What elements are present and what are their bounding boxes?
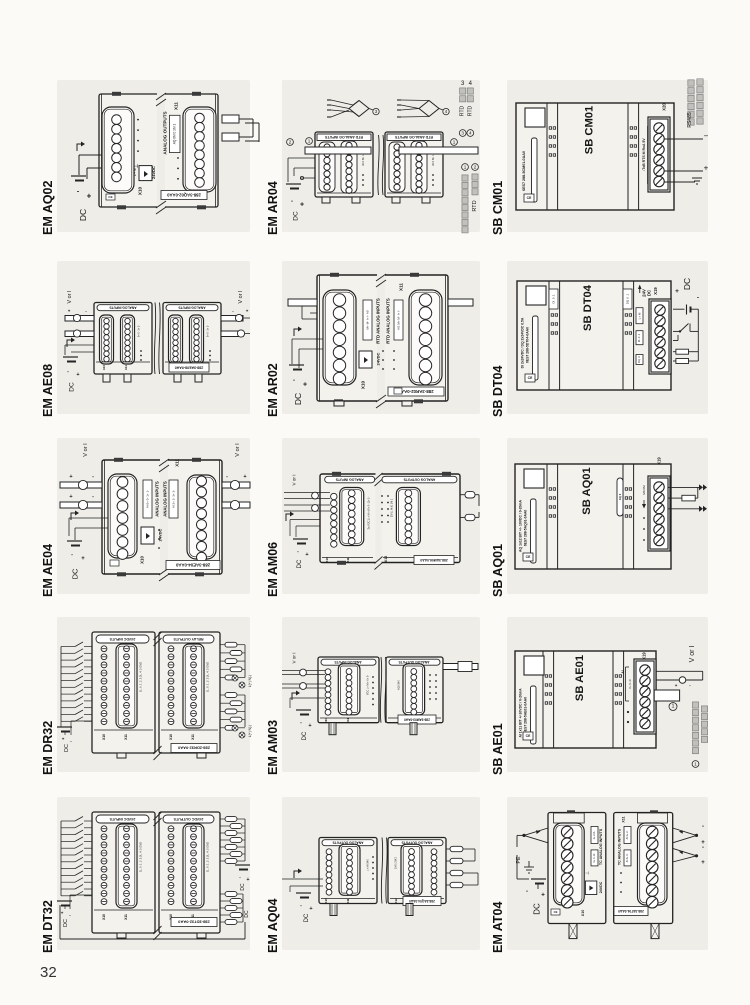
svg-text:-: - bbox=[293, 378, 295, 384]
svg-text:EM AR02: EM AR02 bbox=[266, 363, 280, 417]
svg-text:⊥: ⊥ bbox=[585, 871, 590, 875]
svg-text:288-3AE08-0AA0: 288-3AE08-0AA0 bbox=[175, 366, 204, 370]
svg-text:32: 32 bbox=[40, 964, 57, 981]
svg-text:2: 2 bbox=[474, 165, 477, 170]
svg-text:DC: DC bbox=[78, 209, 88, 221]
svg-text:+: + bbox=[87, 192, 92, 201]
svg-text:-: - bbox=[697, 295, 699, 302]
svg-text:X10: X10 bbox=[140, 556, 145, 564]
svg-text:AQ 1x12 BIT +/- 10VDC / 0-20mA: AQ 1x12 BIT +/- 10VDC / 0-20mA bbox=[519, 499, 523, 551]
svg-text:+: + bbox=[247, 877, 250, 883]
svg-text:L(+) N(-): L(+) N(-) bbox=[248, 725, 252, 738]
svg-text:L+ M: L+ M bbox=[133, 168, 137, 176]
svg-text:1L .0 .1 .2 .3 2L .4 .5 GND: 1L .0 .1 .2 .3 2L .4 .5 GND bbox=[206, 842, 210, 872]
svg-text:I2V (L M (0 1M 1: I2V (L M (0 1M 1 bbox=[391, 498, 394, 517]
svg-text:EM DT32: EM DT32 bbox=[41, 900, 55, 953]
svg-text:288-3AM03-0AA0: 288-3AM03-0AA0 bbox=[404, 718, 430, 722]
svg-text:SB AE01: SB AE01 bbox=[491, 723, 505, 775]
svg-text:RS485: RS485 bbox=[687, 112, 693, 128]
svg-text:6ES7 288-5DT04-0AA0: 6ES7 288-5DT04-0AA0 bbox=[526, 327, 530, 363]
svg-text:1: 1 bbox=[453, 140, 456, 145]
svg-text:X11: X11 bbox=[124, 365, 128, 371]
svg-text:V or I: V or I bbox=[689, 646, 696, 663]
svg-text:AQ 0M 0: AQ 0M 0 bbox=[398, 679, 401, 689]
svg-text:288-2DR32-0AA0: 288-2DR32-0AA0 bbox=[177, 746, 210, 751]
svg-text:4: 4 bbox=[469, 131, 472, 136]
svg-text:X19: X19 bbox=[642, 652, 647, 660]
svg-text:+: + bbox=[701, 860, 705, 866]
svg-text:X11: X11 bbox=[175, 459, 180, 467]
svg-text:DC: DC bbox=[302, 731, 308, 740]
svg-text:-: - bbox=[291, 199, 293, 205]
svg-text:1L .0 .1 .2 .3 2L .4 .5 GND: 1L .0 .1 .2 .3 2L .4 .5 GND bbox=[139, 662, 143, 692]
svg-text:3: 3 bbox=[461, 131, 464, 136]
svg-text:AI 0+ 0- 1+ 1-: AI 0+ 0- 1+ 1- bbox=[146, 490, 150, 508]
svg-text:X12: X12 bbox=[384, 556, 388, 562]
svg-text:AI 0 M- I-: AI 0 M- I- bbox=[431, 154, 435, 166]
svg-text:V or I: V or I bbox=[292, 475, 297, 486]
svg-text:0+ 0- 1+ 1-: 0+ 0- 1+ 1- bbox=[138, 325, 141, 337]
svg-text:AI 3+ 3-: AI 3+ 3- bbox=[626, 853, 629, 862]
svg-text:AI 1x11 BIT +/-10VDC / 0-20mA: AI 1x11 BIT +/-10VDC / 0-20mA bbox=[519, 688, 523, 738]
svg-text:AI: AI bbox=[621, 670, 625, 673]
svg-text:X11: X11 bbox=[399, 283, 404, 291]
svg-text:EM AE04: EM AE04 bbox=[41, 544, 55, 597]
svg-text:SB AQ01: SB AQ01 bbox=[491, 544, 505, 597]
svg-text:ANALOG INPUTS: ANALOG INPUTS bbox=[163, 481, 168, 517]
svg-text:CE: CE bbox=[526, 555, 531, 559]
svg-text:ANALOG INPUTS: ANALOG INPUTS bbox=[155, 481, 160, 517]
svg-text:L+ M: L+ M bbox=[638, 312, 642, 319]
svg-text:AI 2+ 2- 3+ 3-: AI 2+ 2- 3+ 3- bbox=[172, 490, 176, 508]
svg-text:+: + bbox=[81, 556, 85, 562]
svg-text:EM AM03: EM AM03 bbox=[266, 720, 280, 775]
svg-text:+: + bbox=[305, 552, 308, 558]
svg-text:+: + bbox=[62, 737, 65, 742]
svg-text:0+ 0- R: 0+ 0- R bbox=[628, 679, 632, 688]
svg-text:+: + bbox=[300, 202, 304, 209]
svg-text:CE: CE bbox=[554, 910, 558, 914]
svg-text:V or I: V or I bbox=[83, 443, 89, 457]
svg-text:SB DT04: SB DT04 bbox=[582, 284, 594, 331]
svg-text:DC: DC bbox=[533, 903, 542, 915]
svg-text:-: - bbox=[526, 889, 528, 895]
svg-text:AQ 0M 0 1M 1: AQ 0M 0 1M 1 bbox=[173, 124, 177, 145]
svg-text:1+ AI 1-: 1+ AI 1- bbox=[593, 830, 596, 839]
svg-text:ANALOG OUTPUTS: ANALOG OUTPUTS bbox=[403, 477, 436, 481]
svg-text:DC: DC bbox=[240, 883, 246, 891]
svg-text:TC ANALOG INPUTS: TC ANALOG INPUTS bbox=[617, 828, 621, 865]
svg-text:+: + bbox=[541, 892, 545, 899]
svg-text:X12: X12 bbox=[394, 898, 398, 904]
svg-text:DC: DC bbox=[64, 744, 70, 752]
svg-text:DC: DC bbox=[682, 278, 692, 290]
svg-text:X11: X11 bbox=[346, 718, 350, 723]
svg-text:1: 1 bbox=[694, 762, 697, 767]
svg-text:DI .0 .1: DI .0 .1 bbox=[637, 333, 641, 342]
svg-text:−: − bbox=[704, 132, 709, 141]
svg-text:ANALOG INPUTS: ANALOG INPUTS bbox=[335, 477, 364, 481]
svg-text:EM AE08: EM AE08 bbox=[41, 364, 55, 417]
svg-text:X10: X10 bbox=[324, 718, 328, 724]
svg-text:SB AQ01: SB AQ01 bbox=[581, 467, 593, 514]
svg-text:X19: X19 bbox=[653, 287, 658, 295]
svg-text:1: 1 bbox=[672, 704, 675, 710]
svg-text:X10: X10 bbox=[361, 380, 366, 389]
svg-text:24VDC: 24VDC bbox=[376, 352, 381, 365]
svg-text:SB CM01: SB CM01 bbox=[491, 181, 505, 235]
svg-text:X10: X10 bbox=[325, 557, 329, 563]
svg-text:VDC L+ M + 0+ 0-: VDC L+ M + 0+ 0- bbox=[367, 675, 370, 695]
svg-text:+: + bbox=[243, 474, 246, 480]
svg-text:SB CM01: SB CM01 bbox=[584, 106, 596, 155]
svg-text:288-3AT04-0AA0: 288-3AT04-0AA0 bbox=[618, 909, 644, 913]
svg-text:↓TxB RTS M RxA 5V: ↓TxB RTS M RxA 5V bbox=[642, 138, 646, 172]
svg-text:1M 1 2M 2: 1M 1 2M 2 bbox=[395, 856, 398, 868]
svg-text:RELAY OUTPUTS: RELAY OUTPUTS bbox=[173, 637, 204, 641]
svg-text:1L .0 .1 .2 .3 2L .4 .5 GND: 1L .0 .1 .2 .3 2L .4 .5 GND bbox=[139, 842, 143, 872]
svg-text:AQ 0: AQ 0 bbox=[618, 493, 622, 500]
svg-text:X10: X10 bbox=[102, 365, 106, 371]
svg-text:-: - bbox=[71, 552, 73, 558]
svg-text:EM DR32: EM DR32 bbox=[41, 721, 55, 775]
svg-text:+: + bbox=[704, 164, 709, 173]
svg-text:1: 1 bbox=[308, 139, 311, 144]
svg-text:EM AR04: EM AR04 bbox=[266, 181, 280, 235]
svg-text:EM AT04: EM AT04 bbox=[491, 902, 505, 953]
svg-text:DC: DC bbox=[304, 913, 310, 922]
svg-text:6ES7 288-5CM01-0AA0: 6ES7 288-5CM01-0AA0 bbox=[522, 151, 526, 191]
svg-text:X11: X11 bbox=[124, 734, 128, 740]
svg-text:+: + bbox=[69, 474, 72, 480]
svg-text:DQ .0: DQ .0 bbox=[637, 356, 641, 363]
svg-text:CE: CE bbox=[528, 376, 533, 380]
svg-text:+: + bbox=[309, 906, 312, 912]
svg-text:DC: DC bbox=[293, 211, 300, 221]
svg-text:X10: X10 bbox=[169, 734, 173, 740]
svg-text:X11: X11 bbox=[191, 734, 195, 740]
svg-text:24VDC OUTPUTS: 24VDC OUTPUTS bbox=[173, 817, 203, 821]
svg-text:EM AM06: EM AM06 bbox=[266, 542, 280, 597]
svg-text:+: + bbox=[61, 911, 64, 916]
svg-text:DC: DC bbox=[69, 382, 76, 392]
svg-text:RTD ANALOG INPUTS: RTD ANALOG INPUTS bbox=[394, 135, 433, 139]
svg-text:RTD ANALOG INPUTS: RTD ANALOG INPUTS bbox=[324, 135, 363, 139]
svg-text:-: - bbox=[92, 474, 94, 480]
svg-text:DC: DC bbox=[244, 910, 250, 918]
svg-text:24VDC INPUTS: 24VDC INPUTS bbox=[109, 637, 135, 641]
svg-text:SB AE01: SB AE01 bbox=[574, 655, 586, 701]
svg-text:SB DT04: SB DT04 bbox=[491, 366, 505, 417]
svg-text:-: - bbox=[702, 845, 704, 851]
svg-text:X19: X19 bbox=[657, 457, 662, 465]
svg-text:+: + bbox=[675, 683, 678, 688]
svg-text:-: - bbox=[92, 494, 94, 500]
svg-text:DC: DC bbox=[63, 919, 69, 927]
svg-text:V or I: V or I bbox=[235, 443, 241, 457]
svg-text:DC: DC bbox=[293, 393, 303, 405]
svg-text:+: + bbox=[675, 288, 679, 295]
svg-text:0+ 0- 1+ 1-: 0+ 0- 1+ 1- bbox=[207, 325, 210, 337]
svg-text:AI1 M+ M- I+ I-: AI1 M+ M- I+ I- bbox=[397, 310, 401, 330]
svg-text:M+ M- I+ I- A0: M+ M- I+ I- A0 bbox=[366, 310, 370, 329]
svg-text:RTD: RTD bbox=[467, 105, 473, 116]
svg-text:+: + bbox=[308, 723, 311, 729]
svg-text:X10: X10 bbox=[581, 910, 585, 916]
svg-text:+: + bbox=[303, 382, 307, 389]
svg-text:+: + bbox=[68, 309, 71, 314]
svg-text:L(+) N(-): L(+) N(-) bbox=[248, 675, 252, 688]
svg-text:ANALOG INPUTS: ANALOG INPUTS bbox=[109, 306, 137, 310]
svg-text:+: + bbox=[69, 494, 72, 500]
svg-text:X10: X10 bbox=[102, 734, 106, 740]
svg-text:24VDC: 24VDC bbox=[599, 881, 603, 893]
svg-text:RTD: RTD bbox=[472, 200, 478, 211]
svg-text:X10: X10 bbox=[102, 914, 106, 920]
svg-text:RTD: RTD bbox=[460, 105, 466, 116]
svg-text:ANALOG INPUTS: ANALOG INPUTS bbox=[178, 306, 206, 310]
svg-text:X11: X11 bbox=[346, 898, 350, 903]
svg-text:288-3AR02-0AA0: 288-3AR02-0AA0 bbox=[398, 389, 434, 394]
svg-text:X11: X11 bbox=[346, 557, 350, 562]
svg-text:288-3AQ04-0AA0: 288-3AQ04-0AA0 bbox=[409, 899, 435, 903]
svg-text:X11: X11 bbox=[174, 102, 179, 110]
svg-text:0+ 0- AI: 0+ 0- AI bbox=[593, 853, 596, 862]
svg-text:DQ .0 .1: DQ .0 .1 bbox=[626, 293, 630, 304]
svg-text:X20: X20 bbox=[662, 103, 667, 111]
svg-text:24VDC: 24VDC bbox=[158, 528, 163, 541]
svg-text:DI .0 .1: DI .0 .1 bbox=[552, 294, 556, 303]
svg-text:1: 1 bbox=[464, 165, 467, 170]
svg-text:ANALOG OUTPUTS: ANALOG OUTPUTS bbox=[163, 111, 168, 154]
svg-text:2: 2 bbox=[289, 140, 292, 145]
svg-text:X11: X11 bbox=[124, 914, 128, 920]
svg-text:TC ANALOG INPUTS: TC ANALOG INPUTS bbox=[599, 828, 603, 865]
svg-text:EM AQ02: EM AQ02 bbox=[41, 181, 55, 235]
svg-text:DI 2x24VDC / DQ 2x24VDC 0.5A: DI 2x24VDC / DQ 2x24VDC 0.5A bbox=[521, 317, 525, 368]
svg-text:3a VDC (L+ M + (0+ 0- (1+ 1-: 3a VDC (L+ M + (0+ 0- (1+ 1- bbox=[368, 497, 371, 530]
svg-text:288-3AE04-0AA0: 288-3AE04-0AA0 bbox=[175, 563, 210, 568]
svg-text:RTD ANALOG INPUTS: RTD ANALOG INPUTS bbox=[386, 298, 391, 344]
svg-text:CE: CE bbox=[108, 195, 112, 199]
svg-text:288-3DT32-0AA0: 288-3DT32-0AA0 bbox=[177, 920, 209, 925]
svg-text:CE: CE bbox=[527, 196, 532, 200]
svg-text:6ES7 288-5AQ01-0AA0: 6ES7 288-5AQ01-0AA0 bbox=[524, 510, 528, 547]
svg-text:V or I: V or I bbox=[292, 653, 297, 664]
svg-text:M0 0M: M0 0M bbox=[642, 485, 646, 495]
svg-text:-: - bbox=[702, 824, 704, 830]
svg-text:AI 0 M- I-: AI 0 M- I- bbox=[361, 154, 365, 166]
svg-text:6ES7 288-5AE01-0AA0: 6ES7 288-5AE01-0AA0 bbox=[524, 697, 528, 733]
svg-text:24VDC: 24VDC bbox=[151, 166, 156, 179]
svg-text:L+ M 0M 0: L+ M 0M 0 bbox=[367, 858, 370, 870]
svg-text:CE: CE bbox=[526, 734, 531, 738]
svg-text:24VDC INPUTS: 24VDC INPUTS bbox=[109, 817, 135, 821]
svg-text:288-3AM06-0AA0: 288-3AM06-0AA0 bbox=[420, 558, 448, 562]
svg-text:DC: DC bbox=[71, 568, 80, 579]
svg-text:X10: X10 bbox=[324, 898, 328, 904]
svg-text:EM AQ04: EM AQ04 bbox=[266, 899, 280, 953]
svg-text:X10: X10 bbox=[138, 186, 143, 195]
svg-text:AI 2+ 2-: AI 2+ 2- bbox=[626, 830, 629, 839]
svg-text:V or I: V or I bbox=[238, 291, 244, 304]
svg-text:DC: DC bbox=[647, 289, 652, 296]
svg-text:288-3AQ02-0AA0: 288-3AQ02-0AA0 bbox=[166, 193, 200, 198]
svg-text:PE: PE bbox=[516, 856, 522, 863]
svg-text:+: + bbox=[76, 372, 79, 378]
svg-text:X11: X11 bbox=[622, 816, 626, 822]
svg-text:RTD ANALOG INPUTS: RTD ANALOG INPUTS bbox=[376, 298, 381, 344]
svg-text:V or I: V or I bbox=[67, 291, 73, 304]
svg-text:-: - bbox=[226, 474, 228, 480]
svg-text:+: + bbox=[246, 309, 249, 314]
svg-text:DC: DC bbox=[297, 559, 303, 568]
svg-text:1L .0 .1 .2 .3 2L .4 .5 GND: 1L .0 .1 .2 .3 2L .4 .5 GND bbox=[206, 662, 210, 692]
